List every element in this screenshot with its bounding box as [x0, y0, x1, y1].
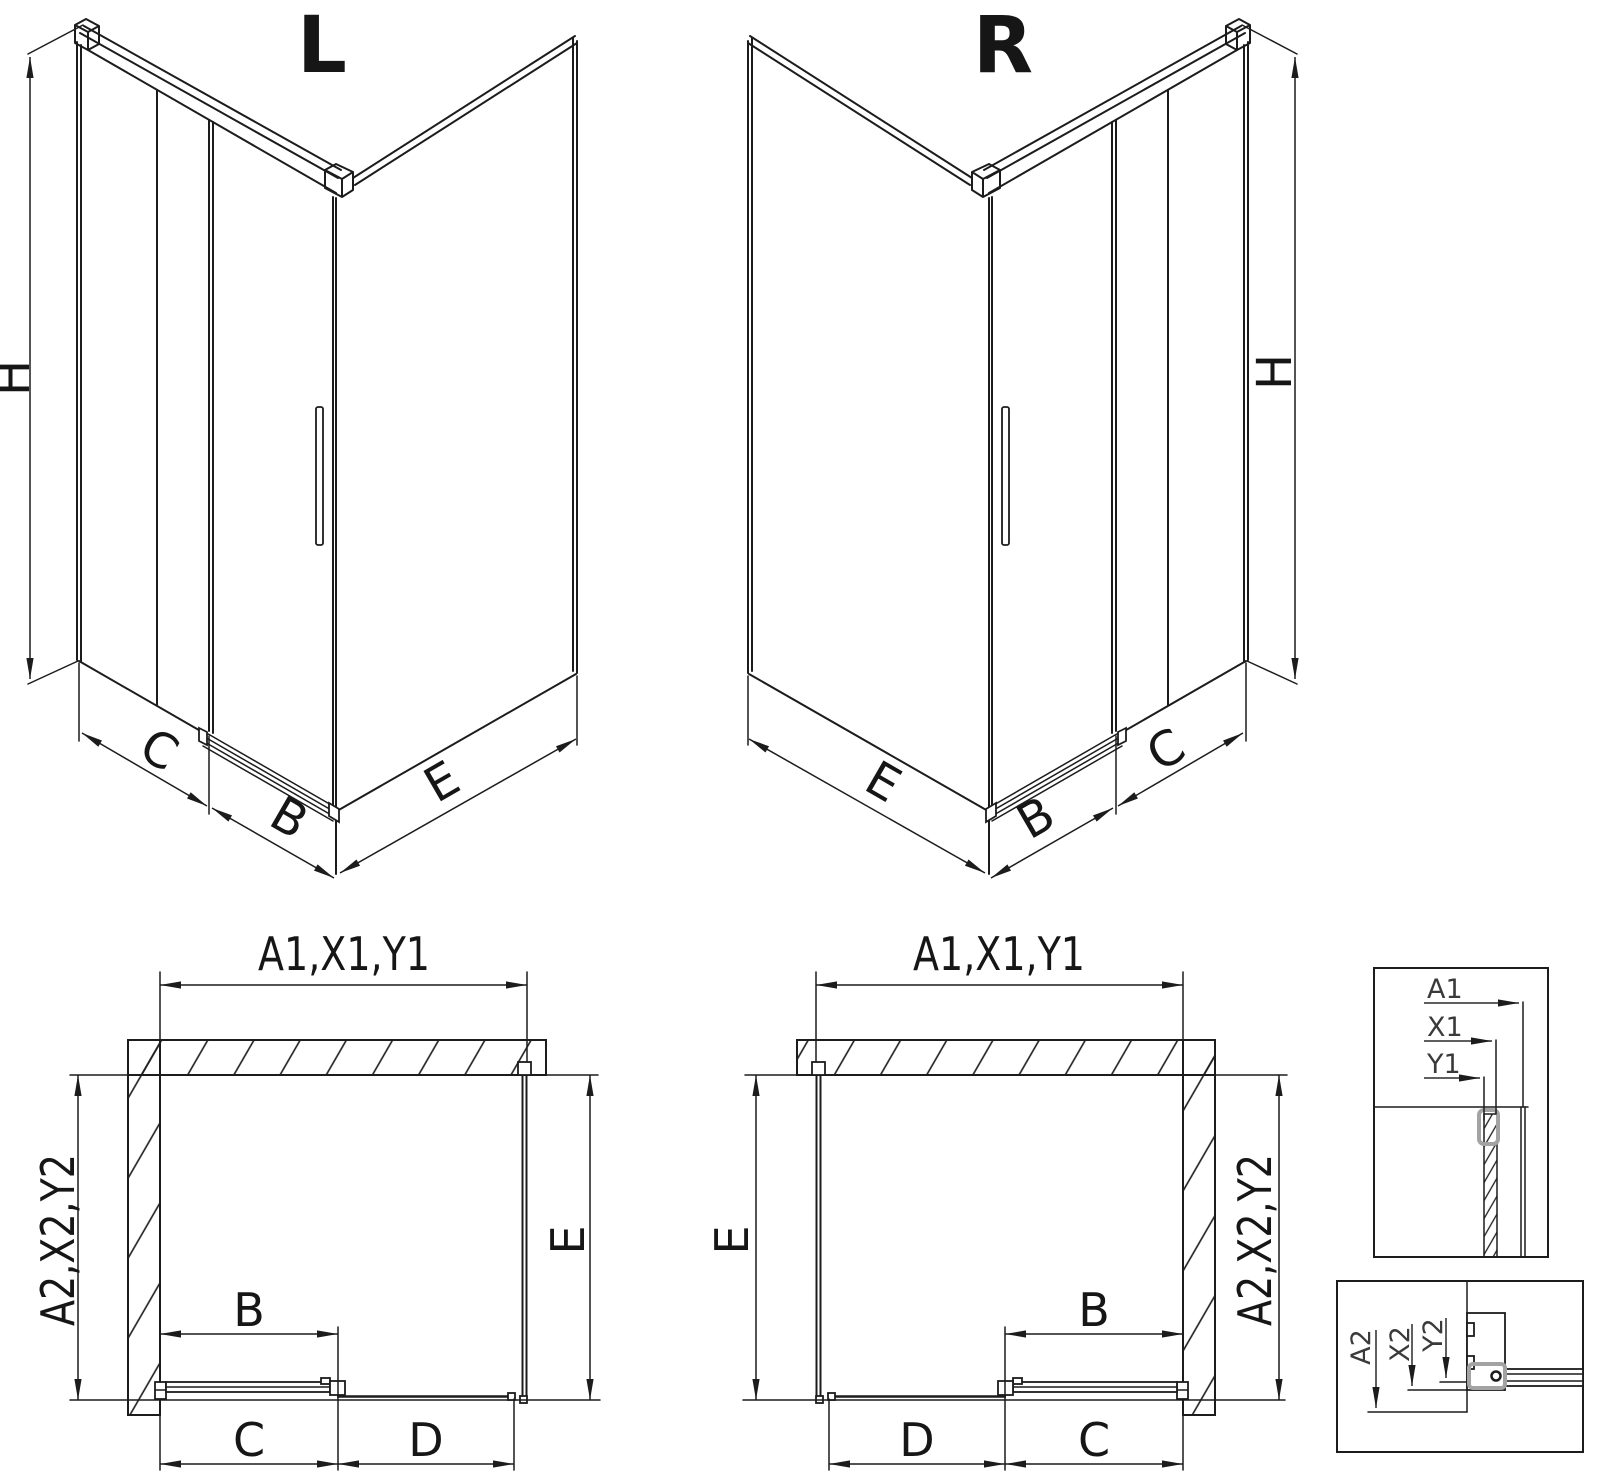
plan-left-label-a2x2y2: A2,X2,Y2 — [31, 1154, 85, 1326]
technical-drawing-page: L H C B E R H C B E — [0, 0, 1600, 1474]
variant-title-l: L — [297, 1, 347, 91]
glass-top-connector — [812, 1062, 825, 1075]
profile-tab — [1467, 1323, 1474, 1336]
roller-tab — [1013, 1378, 1022, 1384]
detail-label-x1: X1 — [1427, 1012, 1463, 1043]
dim-label-h-left: H — [0, 360, 41, 396]
wall-band-top — [128, 1040, 546, 1075]
plan-right-label-a2x2y2: A2,X2,Y2 — [1228, 1154, 1282, 1326]
plan-left-label-a1x1y1: A1,X1,Y1 — [258, 927, 430, 981]
detail-label-a1: A1 — [1427, 974, 1463, 1005]
plan-left-label-d: D — [408, 1413, 443, 1467]
door-panel-section — [1505, 1369, 1583, 1386]
glass-top-connector — [518, 1062, 531, 1075]
plan-right-label-a1x1y1: A1,X1,Y1 — [913, 927, 1085, 981]
plan-right-label-c: C — [1078, 1413, 1110, 1467]
plan-right-label-d: D — [899, 1413, 934, 1467]
plan-left-label-c: C — [233, 1413, 265, 1467]
wall-band-right — [1183, 1040, 1215, 1415]
detail-label-a2: A2 — [1346, 1329, 1377, 1365]
detail-label-y2: Y2 — [1418, 1318, 1449, 1353]
wall-band-top — [797, 1040, 1215, 1075]
glass-section-hatched — [1484, 1114, 1497, 1257]
shower-enclosure-diagram: L H C B E R H C B E — [0, 0, 1600, 1474]
dim-label-h-right: H — [1247, 354, 1303, 390]
plan-right-label-e: E — [705, 1225, 759, 1254]
canvas-background — [0, 0, 1600, 1474]
roller-tab — [321, 1378, 330, 1384]
detail-label-x2: X2 — [1385, 1326, 1416, 1362]
plan-left-label-e: E — [541, 1225, 595, 1254]
plan-left-label-b: B — [233, 1283, 265, 1337]
wall-band-left — [128, 1040, 160, 1415]
detail-label-y1: Y1 — [1426, 1049, 1461, 1080]
variant-title-r: R — [973, 1, 1033, 91]
plan-right-label-b: B — [1078, 1283, 1110, 1337]
roller-wheel — [1492, 1372, 1501, 1381]
door-handle — [316, 407, 323, 545]
